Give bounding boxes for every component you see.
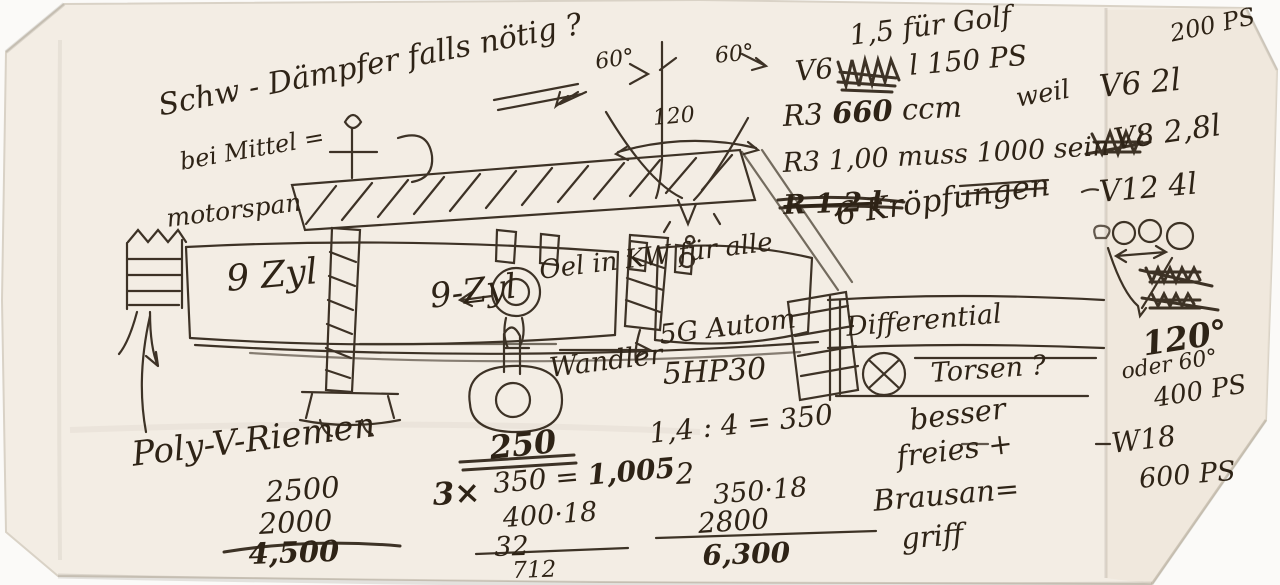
note-2800: 2800	[697, 505, 770, 538]
note-griff: griff	[900, 520, 965, 554]
note-712: 712	[512, 558, 557, 583]
note-torsen: Torsen ?	[930, 352, 1047, 387]
note-r3-muss-suffix: sein	[1053, 131, 1110, 165]
note-v12: V12 4l	[1098, 169, 1198, 207]
cylinder-spacing-sketch	[1094, 220, 1218, 316]
scribble-v6	[838, 60, 899, 92]
note-2500: 2500	[265, 473, 341, 507]
note-2: 2	[675, 459, 695, 489]
note-w18: W18	[1110, 422, 1177, 458]
front-damper-sketch	[119, 230, 186, 432]
envelope-sheet: Schw - Dämpfer falls nötig ? 60° 60° 120…	[0, 0, 1280, 585]
note-r3-value: 660	[831, 93, 893, 130]
note-3x: 3×	[432, 478, 481, 511]
note-angle-60-left: 60°	[594, 47, 636, 74]
note-6300: 6,300	[702, 539, 791, 570]
note-9zyl-right: 9-Zyl	[428, 269, 518, 313]
note-9zyl-left: 9 Zyl	[225, 254, 319, 298]
note-angle-120: 120	[652, 104, 696, 130]
note-v6-prefix: V6	[794, 55, 834, 86]
gearbox-slab-sketch	[788, 292, 858, 400]
note-400x18: 400·18	[502, 498, 598, 532]
top-cross-sketch	[330, 115, 432, 182]
note-600ps: 600 PS	[1138, 458, 1237, 493]
note-r3-prefix: R3	[782, 97, 824, 133]
note-r3-unit: ccm	[901, 90, 963, 127]
note-angle-60-right: 60°	[714, 42, 755, 68]
note-250: 250	[488, 425, 558, 464]
note-v6-2l: V6 2l	[1098, 65, 1182, 103]
note-r3-muss-value: 1000	[976, 134, 1046, 169]
v-angle-sketch	[556, 42, 766, 244]
note-4500-struck: 4,500	[248, 537, 340, 569]
note-5hp30: 5HP30	[662, 355, 767, 390]
